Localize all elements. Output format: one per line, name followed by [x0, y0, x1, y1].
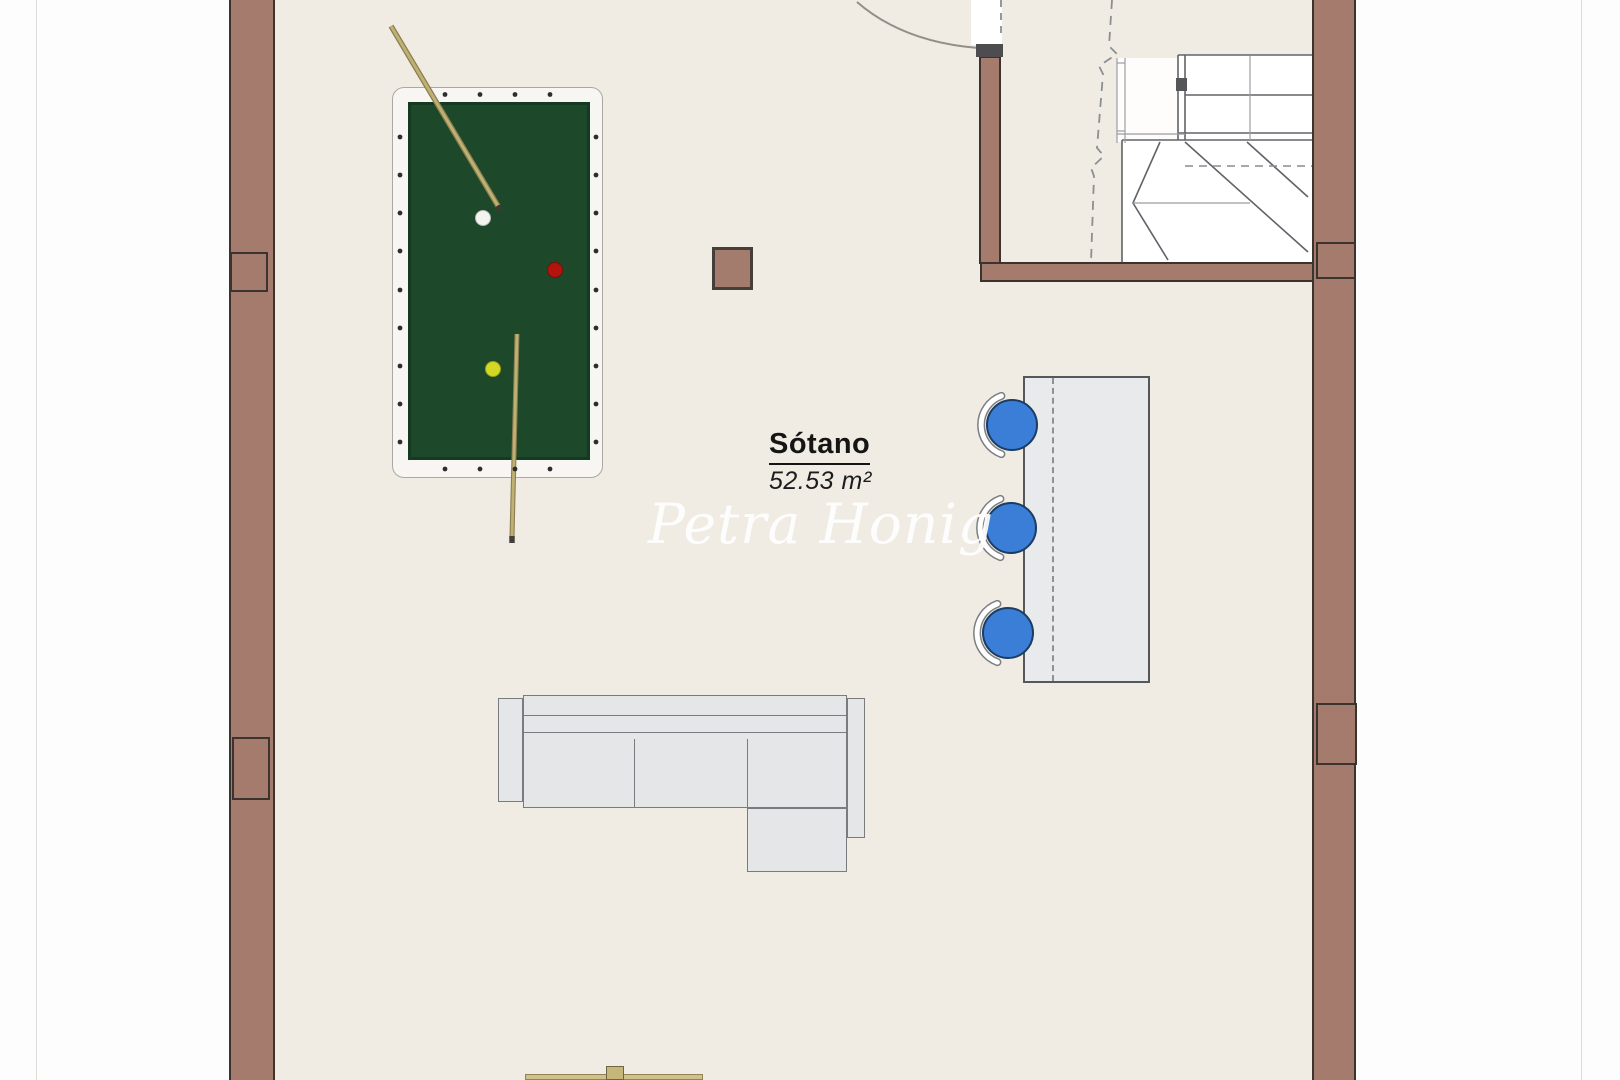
floorplan-canvas: Sótano 52.53 m² Petra Honig — [0, 0, 1620, 1080]
room-label: Sótano — [769, 428, 870, 465]
pool-table-sights — [398, 92, 599, 471]
pool-cue-vertical — [512, 334, 517, 543]
watermark: Petra Honig — [648, 492, 994, 556]
pool-cue-diagonal — [391, 26, 502, 211]
